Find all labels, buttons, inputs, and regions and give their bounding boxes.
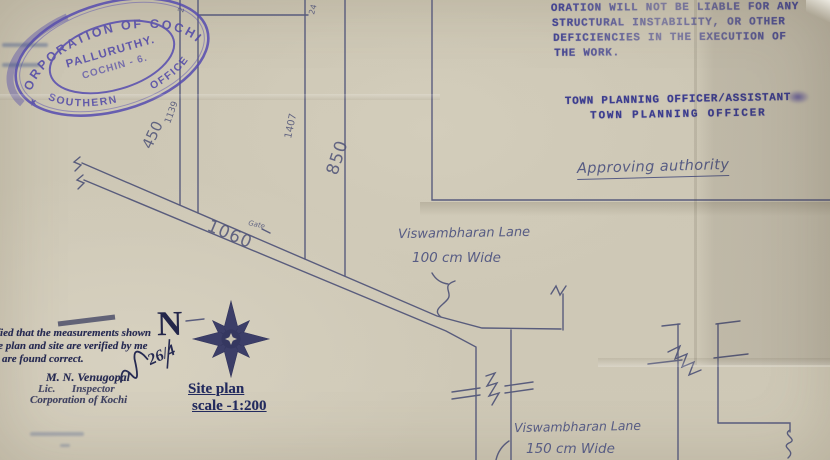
approving-authority-label: Approving authority — [577, 157, 730, 180]
authority-block: TOWN PLANNING OFFICER/ASSISTANT TOWN PLA… — [565, 91, 792, 125]
break-mark-road-end-2 — [77, 175, 84, 189]
scanned-site-plan-document: 450 1139 1407 850 1060 2 24 Gate — [0, 0, 830, 460]
compass-rose-icon — [193, 301, 269, 377]
br-lane-top-tick-right — [716, 321, 740, 324]
road-bottom-edge — [84, 180, 476, 460]
lane1-width-label: 100 cm Wide — [412, 250, 501, 266]
gate-label: Gate — [248, 219, 266, 230]
dimension-1139: 1139 — [163, 100, 180, 125]
site-plan-scale: scale -1:200 — [192, 398, 267, 415]
certification-line-3: are found correct. — [2, 353, 84, 365]
road-top-edge — [82, 163, 561, 329]
north-dash — [186, 319, 204, 321]
disclaimer-line-4: THE WORK. — [554, 45, 799, 62]
break-mark-stub — [551, 286, 566, 295]
ink-smear — [58, 317, 115, 324]
signature-date: 26/4 — [144, 342, 178, 370]
faint-print-fragment-2 — [2, 63, 40, 67]
north-label: N — [157, 306, 183, 341]
lane-break-tick-4 — [505, 389, 533, 393]
ink-blob — [786, 90, 810, 104]
dimension-850: 850 — [323, 138, 353, 178]
lane1-name-label: Viswambharan Lane — [398, 225, 530, 242]
dimension-1407: 1407 — [283, 112, 299, 139]
lane2-width-label: 150 cm Wide — [526, 441, 615, 457]
certifier-org: Corporation of Kochi — [30, 394, 127, 406]
junction-squiggle — [437, 281, 455, 317]
br-break-tick-right — [714, 354, 748, 358]
corporation-stamp: CORPORATION OF COCHIN SOUTHERN OFFICE PA… — [0, 0, 222, 138]
dimension-450: 450 — [138, 118, 166, 152]
width-label-pointer — [432, 273, 448, 284]
disclaimer-line-2: STRUCTURAL INSTABILITY, OR OTHER — [552, 15, 799, 32]
dimension-top-24: 24 — [307, 3, 318, 15]
lane2-name-label: Viswambharan Lane — [514, 418, 641, 435]
site-plan-title: Site plan — [188, 381, 267, 398]
br-corner-boundary — [718, 423, 790, 432]
break-mark-road-end-1 — [74, 157, 81, 171]
site-plan-title-block: Site plan scale -1:200 — [188, 381, 267, 415]
disclaimer-line-1: ORATION WILL NOT BE LIABLE FOR ANY — [551, 0, 799, 17]
lane-break-zigzag — [486, 373, 499, 405]
dimension-1060: 1060 — [204, 216, 255, 253]
certification-line-2: the plan and site are verified by me — [0, 340, 148, 352]
lane2-label-pointer — [496, 441, 509, 460]
certification-line-1: rtified that the measurements shown — [0, 327, 151, 339]
br-break-tick-left — [648, 360, 682, 364]
faint-print-fragment-4 — [60, 444, 70, 447]
faint-print-fragment-3 — [30, 432, 84, 436]
disclaimer-line-3: DEFICIENCIES IN THE EXECUTION OF — [553, 30, 799, 47]
br-corner-break — [786, 430, 792, 458]
faint-print-fragment-1 — [2, 43, 48, 47]
lane-break-tick-3 — [505, 382, 533, 386]
disclaimer-block: ORATION WILL NOT BE LIABLE FOR ANY STRUC… — [551, 0, 800, 62]
